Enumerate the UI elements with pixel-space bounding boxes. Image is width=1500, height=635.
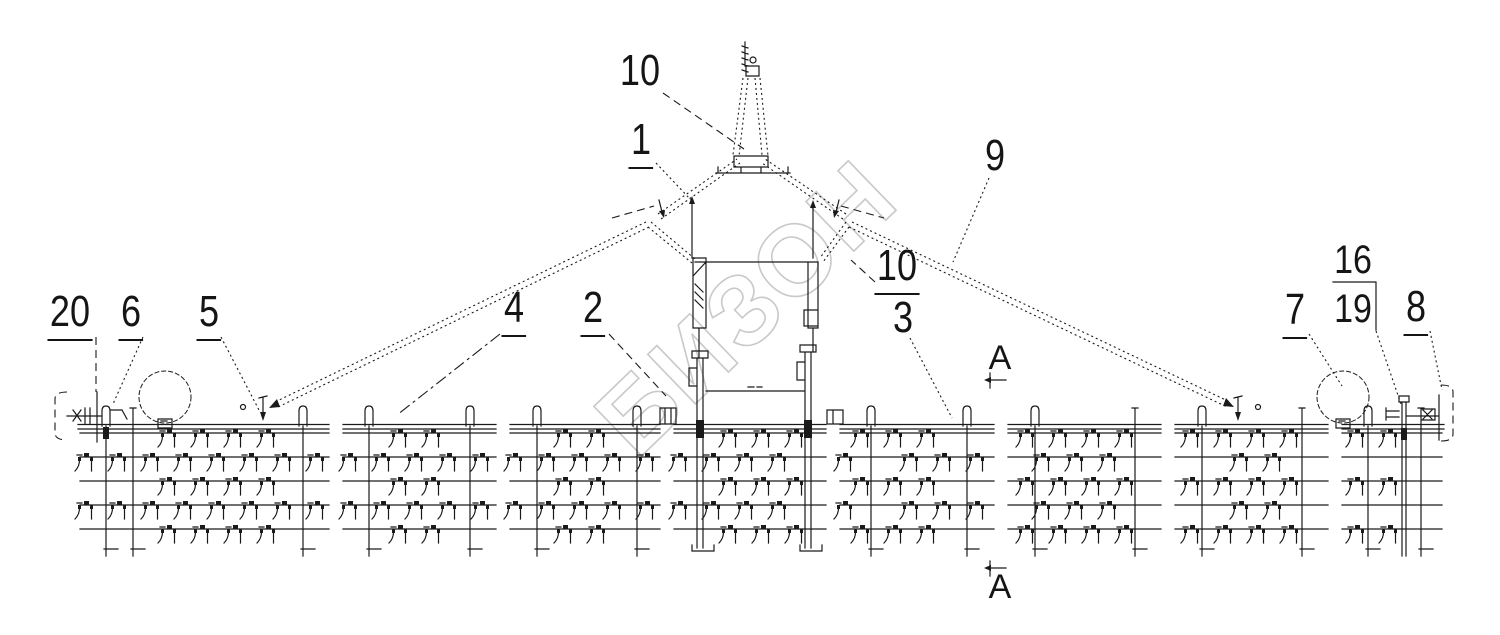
section-mark-a-bottom: А [989,570,1012,604]
callout-2: 2 [581,286,606,330]
callout-7: 7 [1283,288,1308,332]
callout-19: 19 [1331,284,1376,329]
callout-1: 1 [629,118,654,162]
callout-10-lower: 10 [874,244,919,288]
callout-9: 9 [985,134,1005,178]
callout-8: 8 [1404,285,1429,329]
callout-3: 3 [893,296,913,340]
callout-16: 16 [1331,240,1376,284]
assembly-drawing: .s{stroke:#1a1a1a;stroke-width:1.2;fill:… [0,0,1500,635]
callout-4: 4 [502,286,527,330]
callout-5: 5 [197,290,222,334]
callout-16-19: 16 19 [1331,240,1376,329]
callout-6: 6 [119,290,144,334]
callout-10-upper: 10 [620,49,660,93]
callout-20: 20 [47,290,92,334]
section-mark-a-top: А [989,341,1012,375]
